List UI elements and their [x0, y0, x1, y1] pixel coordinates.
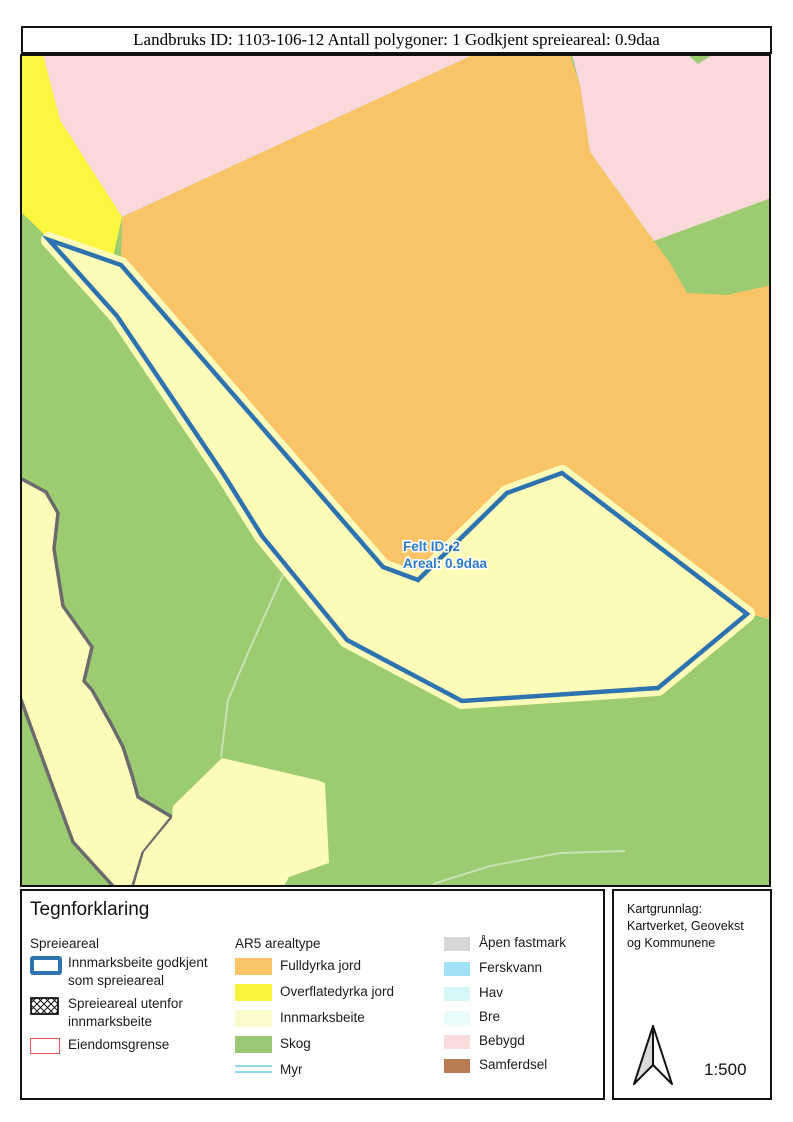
- source-line: Kartverket, Geovekst: [627, 918, 744, 935]
- legend-item-label: som spreieareal: [68, 973, 164, 988]
- legend-item-label: Eiendomsgrense: [68, 1037, 169, 1052]
- feature-label-line2: Areal: 0.9daa: [403, 556, 488, 571]
- legend-item-label: Myr: [280, 1062, 303, 1077]
- legend-group-ar5: AR5 arealtype: [235, 936, 321, 951]
- legend-item-label: Overflatedyrka jord: [280, 984, 394, 999]
- legend-item-label: Åpen fastmark: [479, 935, 566, 950]
- north-arrow-icon: [630, 1024, 676, 1088]
- source-line: Kartgrunnlag:: [627, 901, 744, 918]
- swatch-spreieareal-godkjent: [30, 956, 62, 975]
- legend-item-label: Innmarksbeite godkjent: [68, 955, 208, 970]
- title-text: Landbruks ID: 1103-106-12 Antall polygon…: [133, 30, 660, 50]
- legend-item-label: Fulldyrka jord: [280, 958, 361, 973]
- source-line: og Kommunene: [627, 935, 744, 952]
- legend-item-label: Hav: [479, 985, 503, 1000]
- info-panel: Kartgrunnlag: Kartverket, Geovekst og Ko…: [612, 889, 772, 1100]
- map-report-page: Landbruks ID: 1103-106-12 Antall polygon…: [0, 0, 793, 1122]
- swatch-overflatedyrka: [235, 984, 272, 1001]
- swatch-eiendomsgrense: [30, 1038, 60, 1054]
- legend-item-label: Skog: [280, 1036, 311, 1051]
- swatch-bebygd: [444, 1035, 470, 1049]
- legend-item-label: innmarksbeite: [68, 1014, 152, 1029]
- title-bar: Landbruks ID: 1103-106-12 Antall polygon…: [21, 26, 772, 54]
- legend-item-label: Spreieareal utenfor: [68, 996, 183, 1011]
- swatch-hav: [444, 987, 470, 1001]
- map-source-text: Kartgrunnlag: Kartverket, Geovekst og Ko…: [627, 901, 744, 952]
- swatch-spreieareal-utenfor: [30, 997, 59, 1015]
- scale-text: 1:500: [704, 1060, 747, 1080]
- legend-item-label: Innmarksbeite: [280, 1010, 365, 1025]
- swatch-samferdsel: [444, 1059, 470, 1073]
- swatch-bre: [444, 1011, 470, 1025]
- legend-item-label: Bebygd: [479, 1033, 525, 1048]
- swatch-apen-fastmark: [444, 937, 470, 951]
- swatch-skog: [235, 1036, 272, 1053]
- legend-box: Tegnforklaring Spreieareal Innmarksbeite…: [20, 889, 605, 1100]
- swatch-innmarksbeite: [235, 1010, 272, 1027]
- feature-label-line1: Felt ID: 2: [403, 539, 460, 554]
- legend-group-spreieareal: Spreieareal: [30, 936, 99, 951]
- legend-heading: Tegnforklaring: [30, 899, 149, 921]
- swatch-ferskvann: [444, 962, 470, 976]
- legend-item-label: Bre: [479, 1009, 500, 1024]
- swatch-fulldyrka: [235, 958, 272, 975]
- swatch-myr-line: [235, 1071, 272, 1073]
- legend-item-label: Samferdsel: [479, 1057, 547, 1072]
- map-svg: Felt ID: 2 Areal: 0.9daa: [20, 54, 771, 887]
- swatch-myr-line: [235, 1065, 272, 1067]
- legend-item-label: Ferskvann: [479, 960, 542, 975]
- map-canvas: Felt ID: 2 Areal: 0.9daa: [20, 54, 771, 887]
